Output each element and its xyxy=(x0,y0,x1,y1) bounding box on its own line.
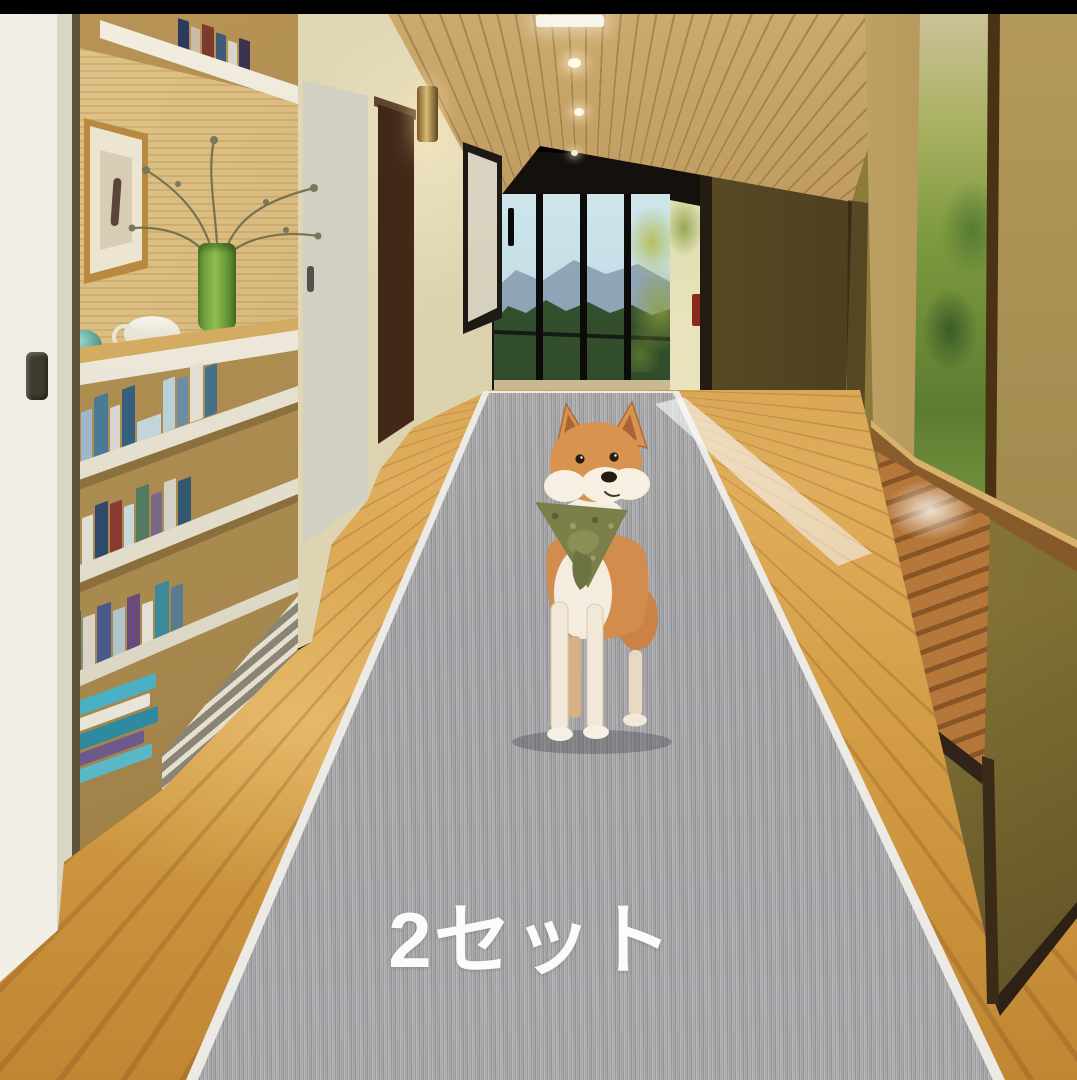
letterbox-bar-top xyxy=(0,0,1077,14)
product-photo: 2セット xyxy=(0,0,1077,1080)
caption-text: 2セット xyxy=(231,878,831,990)
